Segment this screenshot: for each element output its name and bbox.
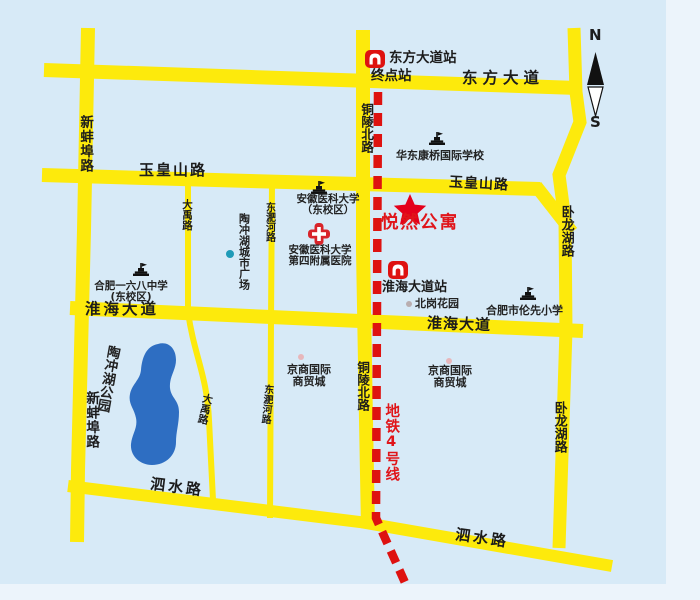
map-canvas: N S 东方大道站 终点站 淮海大道站 地铁4号线 东方大道 玉皇山路 玉皇山路… — [0, 0, 700, 600]
compass-south-label: S — [590, 115, 601, 131]
dot-jingshang-left — [298, 354, 304, 360]
school-icon-lunxian — [520, 287, 536, 300]
road-label-dongfeihe-bottom: 东淝河路 — [258, 384, 272, 425]
poi-anyida-line2: （东校区） — [302, 204, 355, 216]
road-label-wolonghu-top: 卧龙湖路 — [559, 205, 573, 257]
hospital-icon — [308, 223, 330, 245]
road-label-xinbengbu-top: 新蚌埠路 — [78, 115, 92, 173]
poi-label-lunxian-school: 合肥市伦先小学 — [486, 305, 563, 317]
poi-label-jingshang-right: 京商国际 商贸城 — [424, 365, 476, 388]
road-label-dongfeihe-top: 东淝河路 — [263, 202, 274, 242]
road-label-dongfang: 东方大道 — [462, 70, 544, 86]
poi-label-beigang: 北岗花园 — [415, 298, 459, 310]
poi-jingshang-right-line2: 商贸城 — [434, 376, 467, 389]
poi-label-huadong-school: 华东康桥国际学校 — [396, 150, 484, 162]
station-label-huaihai: 淮海大道站 — [382, 281, 447, 295]
station-label-dongfang-sub: 终点站 — [371, 69, 412, 83]
school-icon-huadong — [429, 132, 445, 145]
school-icon-168 — [133, 263, 149, 276]
road-label-tonglingbei-top: 铜陵北路 — [360, 103, 373, 153]
metro-line-4 — [376, 92, 407, 587]
poi-jingshang-left-line2: 商贸城 — [293, 375, 326, 388]
poi-hospital-line2: 第四附属医院 — [289, 255, 352, 267]
metro-line-label: 地铁4号线 — [383, 403, 398, 482]
road-label-huaihai-right: 淮海大道 — [427, 316, 492, 334]
road-label-huaihai-left: 淮海大道 — [85, 301, 159, 317]
compass-icon — [587, 52, 604, 116]
road-label-tonglingbei-bottom: 铜陵北路 — [356, 361, 369, 411]
poi-label-168-school: 合肥一六八中学 (东校区) — [80, 281, 182, 303]
highlight-label-yueran: 悦然公寓 — [381, 214, 459, 232]
poi-label-taochong-plaza: 陶冲湖城市广场 — [238, 213, 250, 290]
station-label-dongfang: 东方大道站 — [389, 51, 457, 65]
poi-label-jingshang-left: 京商国际 商贸城 — [283, 364, 335, 387]
dot-taochong-plaza — [226, 250, 234, 258]
road-label-wolonghu-bottom: 卧龙湖路 — [552, 401, 566, 453]
dot-beigang — [406, 301, 412, 307]
road-wolonghu — [559, 28, 580, 548]
road-label-yuhuangshan-left: 玉皇山路 — [139, 163, 207, 179]
road-label-dayu-top: 大禹路 — [181, 199, 192, 231]
lake-taochonghu — [130, 343, 179, 465]
compass-north-label: N — [589, 28, 602, 44]
road-label-yuhuangshan-right: 玉皇山路 — [449, 175, 510, 193]
station-icon-huaihai — [388, 261, 408, 279]
poi-label-hospital: 安徽医科大学 第四附属医院 — [285, 245, 355, 267]
station-icon-dongfang — [365, 50, 385, 68]
poi-label-anyida: 安徽医科大学 （东校区） — [283, 194, 373, 216]
road-sishui — [68, 486, 612, 566]
poi-168-line2: (东校区) — [110, 291, 151, 303]
